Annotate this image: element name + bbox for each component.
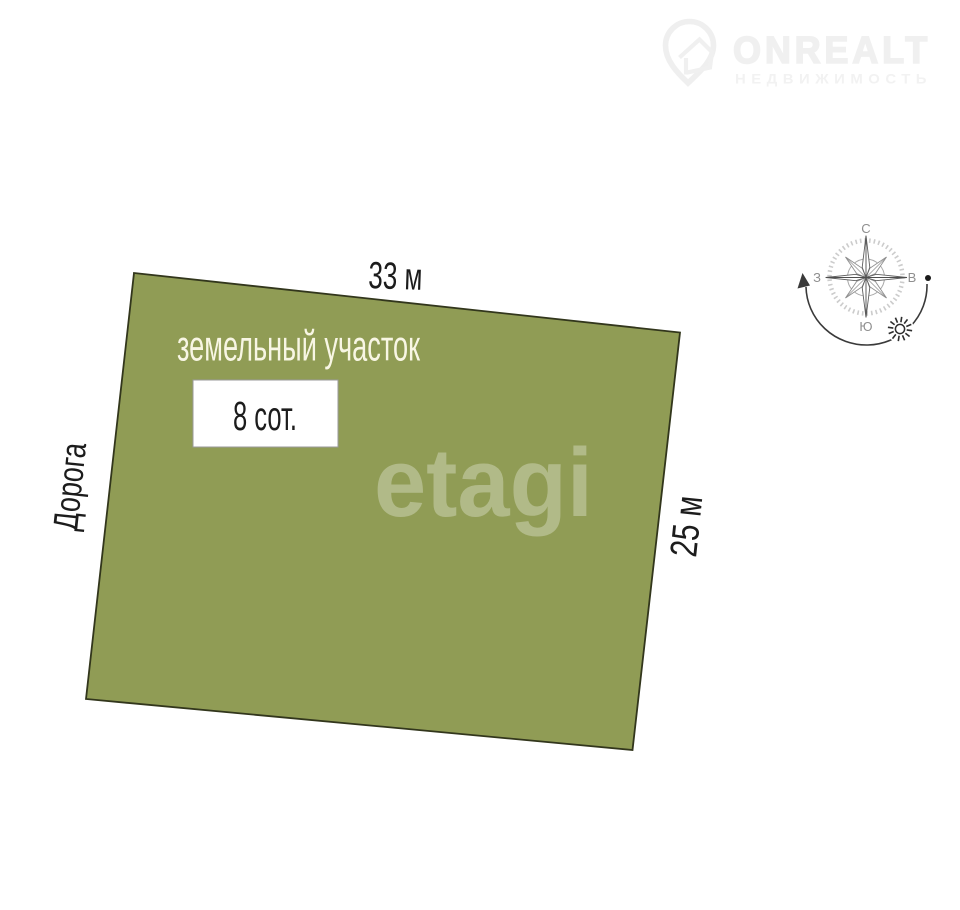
svg-text:Ю: Ю <box>859 319 872 334</box>
svg-text:З: З <box>813 270 821 285</box>
svg-text:НЕДВИЖИМОСТЬ: НЕДВИЖИМОСТЬ <box>735 72 932 87</box>
svg-text:33 м: 33 м <box>368 255 423 299</box>
svg-text:С: С <box>861 221 870 236</box>
svg-text:25 м: 25 м <box>663 494 711 559</box>
svg-text:В: В <box>908 270 917 285</box>
svg-text:земельный участок: земельный участок <box>177 324 420 371</box>
svg-text:ONREALT: ONREALT <box>733 30 931 72</box>
svg-text:8 сот.: 8 сот. <box>233 393 297 439</box>
svg-text:etagi: etagi <box>374 428 593 537</box>
